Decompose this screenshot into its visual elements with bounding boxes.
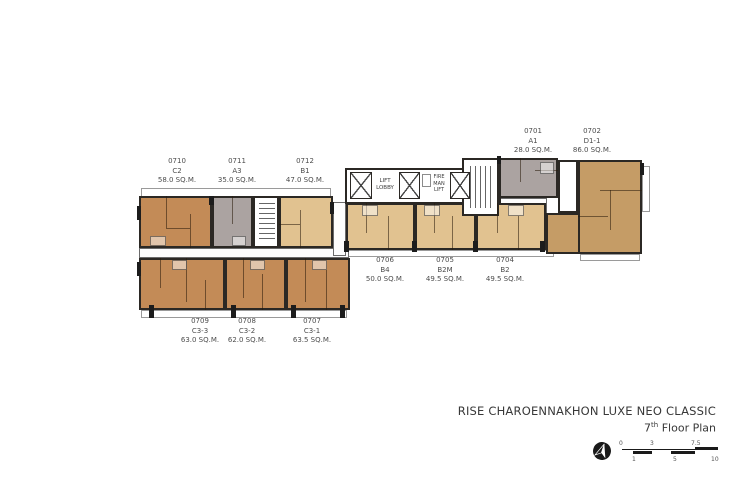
bathroom: [312, 260, 327, 270]
scale-bar-segment: [671, 451, 695, 454]
unit-label-0711: 0711A335.0 SQ.M.: [202, 157, 272, 186]
interior-wall: [279, 224, 300, 225]
balcony-strip-southeast: [580, 254, 640, 261]
interior-wall: [520, 158, 521, 182]
wall-segment: [540, 241, 545, 252]
project-title: RISE CHAROENNAKHON LUXE NEO CLASSIC: [360, 404, 716, 418]
wall-segment: [330, 202, 334, 214]
interior-wall: [497, 203, 498, 233]
wall-segment: [137, 262, 141, 276]
unit-label-0702: 0702D1-186.0 SQ.M.: [557, 127, 627, 156]
interior-wall: [243, 258, 244, 298]
interior-wall: [300, 210, 301, 248]
bathroom: [232, 236, 246, 246]
stair-core-west: [253, 196, 279, 248]
lift-lobby-label: LIFTLOBBY: [372, 178, 398, 191]
interior-wall: [578, 216, 608, 217]
interior-wall: [388, 216, 389, 250]
interior-wall: [205, 280, 206, 310]
wall-segment: [209, 196, 214, 205]
bathroom: [250, 260, 265, 270]
unit-label-0707: 0707C3-163.5 SQ.M.: [277, 317, 347, 346]
floor-plan-subtitle: 7th Floor Plan: [360, 421, 716, 435]
floor-plan-page: LIFTLOBBY FIREMANLIFT: [0, 0, 750, 500]
unit-0702-area-west-lobe: [546, 213, 580, 254]
wall-segment: [412, 241, 417, 252]
wall-segment: [149, 305, 154, 318]
interior-wall: [518, 216, 519, 250]
interior-wall: [166, 228, 190, 229]
interior-wall: [452, 216, 453, 250]
unit-0706-area: [346, 203, 415, 250]
interior-wall: [610, 190, 611, 230]
interior-wall: [160, 258, 161, 288]
corridor-west: [139, 248, 349, 258]
lift-shaft-icon: [350, 172, 372, 199]
interior-wall: [600, 190, 642, 191]
interior-wall: [166, 196, 167, 228]
title-block: RISE CHAROENNAKHON LUXE NEO CLASSIC 7th …: [360, 404, 716, 435]
bathroom: [424, 205, 440, 216]
unit-label-0712: 0712B147.0 SQ.M.: [270, 157, 340, 186]
wall-segment: [344, 241, 349, 252]
stairs-icon: [470, 166, 494, 208]
interior-wall: [305, 258, 306, 302]
interior-wall: [232, 196, 233, 224]
interior-wall: [326, 270, 327, 310]
unit-label-0704: 0704B249.5 SQ.M.: [470, 256, 540, 285]
stairs-icon: [259, 203, 275, 243]
wall-segment: [640, 163, 644, 175]
bathroom: [540, 162, 554, 174]
service-rooms: [558, 160, 578, 213]
bathroom: [150, 236, 166, 246]
scale-bar-segment: [633, 451, 652, 454]
wall-segment: [497, 156, 501, 164]
scale-bar-segment: [695, 447, 718, 450]
fireman-lift-label: FIREMANLIFT: [428, 174, 450, 194]
scale-bar-line: [622, 449, 695, 450]
unit-0712-area: [279, 196, 333, 248]
bathroom: [172, 260, 187, 270]
wall-segment: [473, 241, 478, 252]
unit-label-0708: 0708C3-262.0 SQ.M.: [212, 317, 282, 346]
lift-shaft-icon: [450, 172, 470, 199]
wall-segment: [137, 206, 141, 220]
interior-wall: [190, 214, 191, 248]
bathroom: [362, 205, 378, 216]
north-arrow-icon: [593, 442, 611, 460]
bathroom: [508, 205, 524, 216]
lift-shaft-icon: [399, 172, 420, 199]
interior-wall: [262, 274, 263, 310]
